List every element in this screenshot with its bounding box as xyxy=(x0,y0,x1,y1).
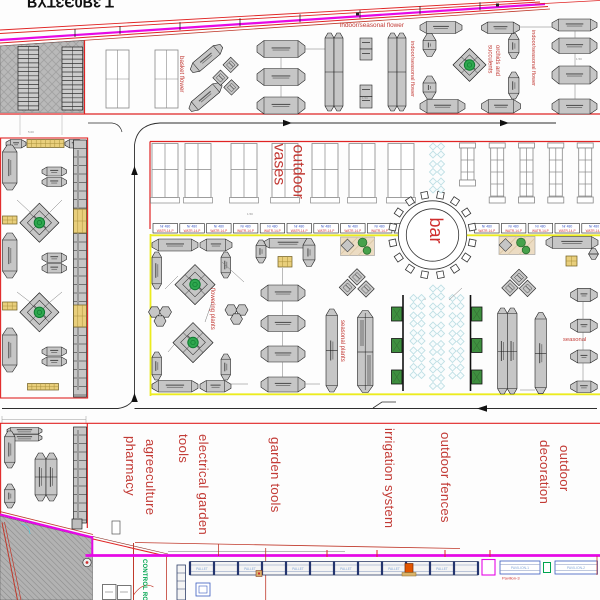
svg-text:outdoor fences: outdoor fences xyxy=(438,432,453,523)
svg-text:bar: bar xyxy=(426,218,446,244)
svg-text:Nr 480: Nr 480 xyxy=(375,224,385,228)
svg-text:WATR-14-P: WATR-14-P xyxy=(291,229,308,233)
svg-text:WATR-14-P: WATR-14-P xyxy=(371,229,388,233)
svg-text:WATR-14-P: WATR-14-P xyxy=(237,229,254,233)
svg-text:T 3Я0ЭЗТYЯ: T 3Я0ЭЗТYЯ xyxy=(27,0,114,10)
svg-text:flowering plants: flowering plants xyxy=(209,288,215,330)
svg-text:garden tools: garden tools xyxy=(268,437,283,513)
svg-text:Pavilion-3: Pavilion-3 xyxy=(502,576,520,581)
svg-text:outdoor: outdoor xyxy=(290,145,307,200)
svg-text:5.00: 5.00 xyxy=(28,130,34,134)
svg-text:Nr 480: Nr 480 xyxy=(589,224,599,228)
svg-text:WATR-14-P: WATR-14-P xyxy=(344,229,361,233)
svg-text:Nr 480: Nr 480 xyxy=(535,224,545,228)
svg-text:orchids and: orchids and xyxy=(494,45,500,76)
svg-text:1.50: 1.50 xyxy=(362,96,368,100)
svg-text:Nr 480: Nr 480 xyxy=(482,224,492,228)
svg-text:CONTROL ROOM: CONTROL ROOM xyxy=(141,559,147,600)
svg-text:basket flower: basket flower xyxy=(178,56,185,92)
svg-text:tools: tools xyxy=(176,434,191,463)
svg-text:Nr 480: Nr 480 xyxy=(294,224,304,228)
svg-text:indoor/seasonal flower: indoor/seasonal flower xyxy=(409,41,415,97)
svg-text:PALLET: PALLET xyxy=(340,567,352,571)
svg-text:WATR-14-P: WATR-14-P xyxy=(505,229,522,233)
svg-text:Nr 480: Nr 480 xyxy=(348,224,358,228)
svg-text:WATR-14-P: WATR-14-P xyxy=(184,229,201,233)
svg-text:pharmacy: pharmacy xyxy=(123,436,138,496)
svg-text:vases: vases xyxy=(271,144,288,186)
svg-text:PAVILION-2: PAVILION-2 xyxy=(567,566,585,570)
svg-text:Nr 480: Nr 480 xyxy=(187,224,197,228)
svg-text:PALLET: PALLET xyxy=(196,567,208,571)
svg-text:WATR-14-P: WATR-14-P xyxy=(478,229,495,233)
svg-text:outdoor: outdoor xyxy=(557,445,572,492)
svg-text:1.50: 1.50 xyxy=(576,57,582,61)
svg-text:Nr 480: Nr 480 xyxy=(160,224,170,228)
svg-text:PALLET: PALLET xyxy=(244,567,256,571)
svg-text:Nr 480: Nr 480 xyxy=(214,224,224,228)
svg-text:electrical garden: electrical garden xyxy=(196,434,211,535)
svg-text:WATR-14-P: WATR-14-P xyxy=(210,229,227,233)
svg-text:PAVILION-1: PAVILION-1 xyxy=(511,566,529,570)
svg-text:indoor/seasonal flower: indoor/seasonal flower xyxy=(340,22,405,29)
svg-text:succulents: succulents xyxy=(487,45,493,73)
svg-text:WATR-14-P: WATR-14-P xyxy=(586,229,600,233)
svg-text:Nr 480: Nr 480 xyxy=(321,224,331,228)
svg-text:PALLET: PALLET xyxy=(436,567,448,571)
svg-text:irrigation system: irrigation system xyxy=(382,428,397,528)
svg-text:Nr 480: Nr 480 xyxy=(562,224,572,228)
svg-text:Nr 480: Nr 480 xyxy=(509,224,519,228)
svg-text:WATR-14-P: WATR-14-P xyxy=(559,229,576,233)
svg-text:WATR-14-P: WATR-14-P xyxy=(157,229,174,233)
svg-text:Nr 480: Nr 480 xyxy=(241,224,251,228)
svg-text:Nr 480: Nr 480 xyxy=(267,224,277,228)
svg-text:indoor/seasonal flower: indoor/seasonal flower xyxy=(530,30,536,86)
svg-text:agreeculture: agreeculture xyxy=(143,439,158,515)
svg-text:WATR-14-P: WATR-14-P xyxy=(264,229,281,233)
svg-text:PALLET: PALLET xyxy=(388,567,400,571)
svg-text:WATR-14-P: WATR-14-P xyxy=(532,229,549,233)
svg-text:seasonal plants: seasonal plants xyxy=(339,320,345,362)
svg-text:WATR-14-P: WATR-14-P xyxy=(318,229,335,233)
svg-text:decoration: decoration xyxy=(537,440,552,504)
svg-text:1.50: 1.50 xyxy=(247,212,253,216)
svg-text:PALLET: PALLET xyxy=(292,567,304,571)
svg-text:seasonal: seasonal xyxy=(563,337,586,343)
